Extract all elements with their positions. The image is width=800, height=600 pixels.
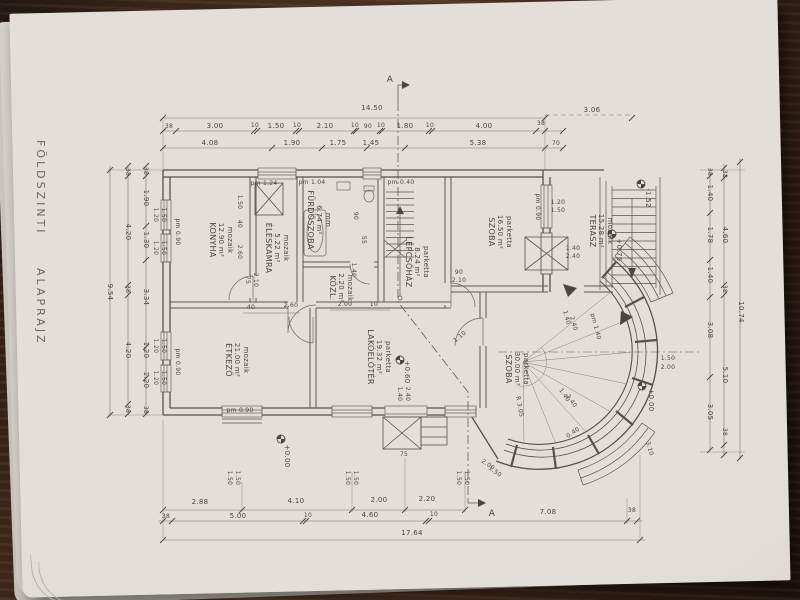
photo-scene: FÖLDSZINTI ALAPRAJZ xyxy=(0,0,800,600)
window-labels-label: 1.50 xyxy=(226,471,233,486)
interior-dims-label: 40 xyxy=(236,220,243,228)
dims-top-label: 1.75 xyxy=(330,139,347,147)
window-labels-label: 1.50 xyxy=(487,465,503,479)
room-name-terasz: TERASZ xyxy=(588,213,597,247)
sill-notes-label: pm 1.04 xyxy=(298,179,325,186)
dims-top-label: 5.38 xyxy=(470,139,487,147)
dims-top-label: 10 xyxy=(293,122,301,129)
levels-label: +0.00 xyxy=(647,389,655,412)
interior-dims-label: 2.10 xyxy=(452,277,467,284)
dims-left-label: 1.90 xyxy=(142,190,150,207)
dims-top-label: 1.50 xyxy=(268,122,285,130)
dims-top-label: 1.45 xyxy=(363,139,380,147)
french-door-symbol xyxy=(525,233,568,274)
dims-left-label: 4.20 xyxy=(124,342,132,359)
room-area-terasz: 15.28 m² xyxy=(597,214,605,248)
interior-dims-label: 3.10 xyxy=(644,441,655,457)
sill-notes-label: pm 0.90 xyxy=(174,218,181,245)
toilet xyxy=(364,190,374,202)
dims-top-label: 1.80 xyxy=(397,122,414,130)
dims-top-label: 1.90 xyxy=(284,139,301,147)
section-arrow xyxy=(402,81,410,89)
dims-right-label: 4.60 xyxy=(721,227,729,244)
interior-dims-label: 2.10 xyxy=(252,273,259,288)
dims-top-label: 10 xyxy=(251,122,259,129)
dims-bottom-label: 10 xyxy=(304,512,312,519)
stair-direction-arrow xyxy=(396,206,404,214)
room-floor-szoba-1: parketta xyxy=(505,216,513,248)
room-area-szoba-1: 16.50 m² xyxy=(496,215,504,249)
sill-notes-label: pm 0.90 xyxy=(174,348,181,375)
window-labels-label: 1.20 xyxy=(152,371,159,386)
window-labels-label: 1.20 xyxy=(152,208,159,223)
dims-left-label: 1.20 xyxy=(142,372,150,389)
window-labels-label: 1.40 xyxy=(396,387,403,402)
interior-dims-label: 40 xyxy=(247,304,255,311)
window-labels-label: 1.50 xyxy=(463,471,470,486)
window-labels-label: 1.50 xyxy=(160,241,167,256)
dims-bottom-label: 38 xyxy=(628,507,636,514)
section-marks-label: A xyxy=(489,509,496,519)
dims-top-label: 2.10 xyxy=(317,122,334,130)
floor-plan-drawing: KONYHA12.90 m²mozaikÉLÉSKAMRA5.22 m²moza… xyxy=(0,0,800,600)
interior-dims-label: 2.00 xyxy=(338,301,353,308)
window-labels-label: 1.50 xyxy=(160,208,167,223)
window-labels-label: 1.50 xyxy=(234,471,241,486)
dims-left-label: 1.30 xyxy=(142,232,150,249)
dims-top-label: 4.08 xyxy=(202,139,219,147)
interior-dims-label: 75 xyxy=(400,451,408,458)
dims-bottom-label: 38 xyxy=(162,513,170,520)
dims-right-label: 3.08 xyxy=(706,322,714,339)
dims-left-label: 38 xyxy=(142,406,149,414)
room-name-konyha: KONYHA xyxy=(208,222,217,257)
window-labels-label: 1.40 xyxy=(566,245,581,252)
room-floor-konyha: mozaik xyxy=(226,227,234,255)
window-labels-label: 1.50 xyxy=(344,471,351,486)
dims-bottom-label: 2.00 xyxy=(371,496,388,504)
window-labels-label: 1.20 xyxy=(551,199,566,206)
dims-right-label: 38 xyxy=(706,168,713,176)
dims-right-label: 3.05 xyxy=(706,404,714,421)
room-floor-furdoszoba: mm xyxy=(324,213,332,227)
dims-right-label: 1.78 xyxy=(706,227,714,244)
dims-top-label: 38 xyxy=(537,120,545,127)
dims-top-label: 4.00 xyxy=(476,122,493,130)
dims-right-label: 1.40 xyxy=(706,185,714,202)
dims-left-label: 38 xyxy=(124,285,131,293)
level-marker xyxy=(396,356,404,364)
room-floor-terasz: mozaik xyxy=(606,218,614,246)
interior-dims-label: 2.00 xyxy=(661,364,676,371)
room-name-szoba-1: SZOBA xyxy=(487,217,496,247)
interior-dims-label: 2.60 xyxy=(236,245,243,260)
window-labels-label: 1.50 xyxy=(352,471,359,486)
direction-arrow xyxy=(563,284,577,297)
dims-top-label: 10 xyxy=(426,122,434,129)
washbasin xyxy=(337,182,350,190)
dims-left-label: 3.34 xyxy=(142,289,150,306)
interior-dims-label: 90 xyxy=(455,269,463,276)
dims-right-label: 1.40 xyxy=(706,267,714,284)
room-area-furdoszoba: 6.74 m² xyxy=(315,205,323,235)
dims-left-label: 4.20 xyxy=(124,224,132,241)
window-labels-label: 1.20 xyxy=(152,339,159,354)
dims-bottom-label: 4.10 xyxy=(288,497,305,505)
interior-dims-label: 90 xyxy=(352,212,359,220)
dims-top-label: 70 xyxy=(552,140,560,147)
level-marker xyxy=(638,382,646,390)
dims-top-label: 90 xyxy=(364,123,372,130)
room-name-kozlekedo: KÖZL. xyxy=(328,275,338,300)
level-marker xyxy=(277,435,285,443)
room-area-konyha: 12.90 m² xyxy=(217,223,225,257)
interior-dims-label: 1.40 xyxy=(350,263,357,278)
room-floor-kozlekedo: mozaik xyxy=(346,275,354,303)
room-area-kozlekedo: 2.20 m² xyxy=(337,273,345,303)
room-floor-szoba-2: parketta xyxy=(522,353,530,385)
room-name-furdoszoba: FÜRDŐSZOBA xyxy=(306,190,316,250)
garden-steps xyxy=(578,237,673,485)
window-labels-label: 2.40 xyxy=(566,253,581,260)
dims-left-label: 38 xyxy=(142,167,149,175)
window-labels-label: 1.20 xyxy=(152,241,159,256)
room-name-szoba-2: SZOBA xyxy=(504,354,513,384)
interior-dims-label: 2.60 xyxy=(284,302,299,309)
dims-bottom-label: 4.60 xyxy=(362,511,379,519)
dims-bottom-label: 2.20 xyxy=(419,495,436,503)
section-marks-label: A xyxy=(387,75,394,85)
dimension-lines xyxy=(107,115,745,543)
bay-mullions xyxy=(511,262,657,469)
interior-dims-label: 1.50 xyxy=(661,355,676,362)
window-labels-label: 1.50 xyxy=(160,339,167,354)
room-area-szoba-2: 30.00 m² xyxy=(513,352,521,386)
levels-label: -1.52 xyxy=(644,188,652,208)
dims-top-label: 10 xyxy=(351,122,359,129)
dims-bottom-label: 5.00 xyxy=(230,512,247,520)
steps-direction-arrow xyxy=(620,311,633,325)
dims-top-label: 3.06 xyxy=(584,106,601,114)
interior-dims-label: 75 xyxy=(244,276,251,284)
sill-notes-label: pm 1.40 xyxy=(589,313,603,341)
section-arrow xyxy=(478,499,486,507)
interior-dims-label: 1.50 xyxy=(236,195,243,210)
dims-bottom-label: 2.88 xyxy=(192,498,209,506)
dims-bottom-label: 7.08 xyxy=(540,508,557,516)
dims-top-label: 14.50 xyxy=(361,104,383,112)
room-floor-lepcsohaz: parketta xyxy=(422,246,430,278)
dims-bottom-label: 17.64 xyxy=(401,529,423,537)
dims-right-label: 10.74 xyxy=(737,301,745,323)
room-area-lakoeloter: 19.32 m² xyxy=(375,340,383,374)
dims-bottom-label: 10 xyxy=(430,511,438,518)
window-labels-label: 1.50 xyxy=(551,207,566,214)
dims-top-label: 3.00 xyxy=(207,122,224,130)
interior-dims-label: R 3.05 xyxy=(514,396,525,418)
levels-label: +0.60 xyxy=(403,361,411,384)
window-labels-label: 2.40 xyxy=(404,387,411,402)
window-labels-label: 1.50 xyxy=(455,471,462,486)
sill-notes-label: pm 0.40 xyxy=(387,179,414,186)
room-floor-eleskamra: mozaik xyxy=(282,235,290,263)
interior-dims-label: 1.10 xyxy=(452,329,468,344)
level-marker xyxy=(637,180,645,188)
bay-radial-fan xyxy=(519,292,633,444)
room-area-eleskamra: 5.22 m² xyxy=(273,233,281,263)
dims-left-label: 38 xyxy=(124,168,131,176)
levels-label: +0.00 xyxy=(283,445,291,468)
dims-right-label: 38 xyxy=(721,170,728,178)
sill-notes-label: pm 1.24 xyxy=(250,180,277,187)
dims-top-label: 10 xyxy=(377,122,385,129)
dims-left-label: 38 xyxy=(124,405,131,413)
sill-notes-label: pm 0.90 xyxy=(534,193,541,220)
dims-left-label: 9.54 xyxy=(106,284,114,301)
dims-right-label: 5.10 xyxy=(721,367,729,384)
interior-dims-label: 10 xyxy=(370,301,378,308)
room-floor-etkezo: mozaik xyxy=(242,347,250,375)
room-area-lepcsohaz: 8.24 m² xyxy=(413,247,421,277)
dims-left-label: 1.20 xyxy=(142,342,150,359)
room-area-etkezo: 21.00 m² xyxy=(233,343,241,377)
levels-label: +0.75 xyxy=(615,239,623,262)
room-floor-lakoeloter: parketta xyxy=(384,341,392,373)
interior-dims-label: 55 xyxy=(360,236,367,244)
dims-right-label: 38 xyxy=(721,428,728,436)
sill-notes-label: pm 0.90 xyxy=(226,407,253,414)
dims-right-label: 38 xyxy=(721,285,728,293)
window-labels-label: 1.50 xyxy=(160,371,167,386)
dims-top-label: 38 xyxy=(165,123,173,130)
